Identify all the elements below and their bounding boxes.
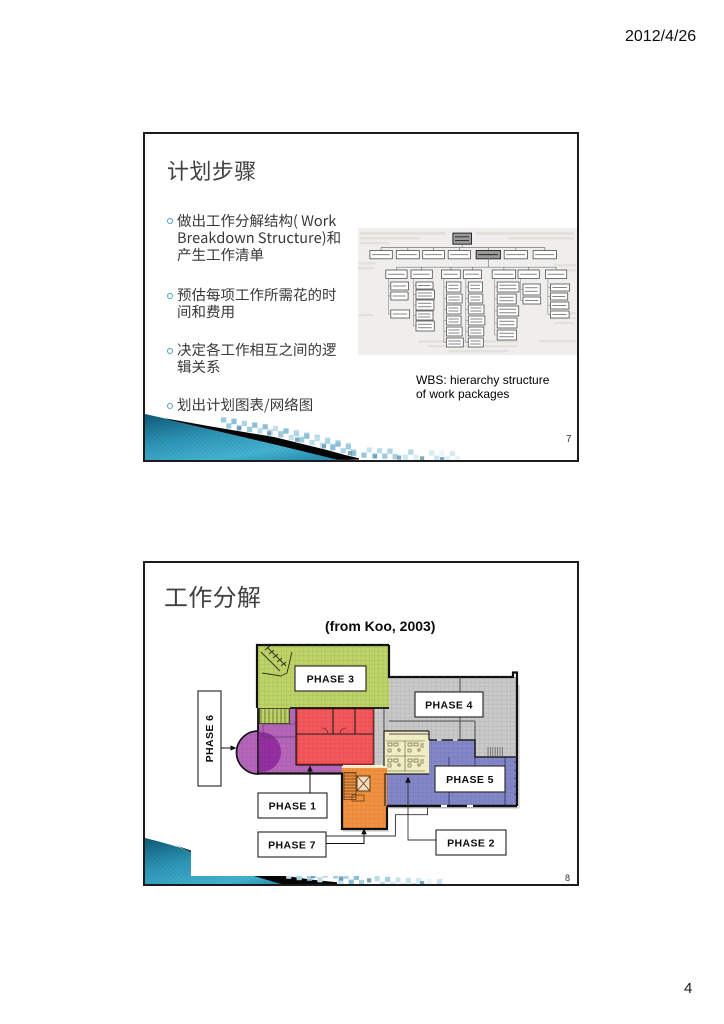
svg-text:PHASE 3: PHASE 3 bbox=[307, 673, 355, 685]
svg-text:PHASE 7: PHASE 7 bbox=[268, 839, 316, 851]
svg-text:PHASE 4: PHASE 4 bbox=[425, 699, 473, 711]
svg-text:PHASE 2: PHASE 2 bbox=[447, 837, 495, 849]
svg-text:PHASE 6: PHASE 6 bbox=[204, 715, 216, 763]
svg-text:PHASE 5: PHASE 5 bbox=[446, 774, 494, 786]
svg-text:PHASE 1: PHASE 1 bbox=[269, 800, 317, 812]
